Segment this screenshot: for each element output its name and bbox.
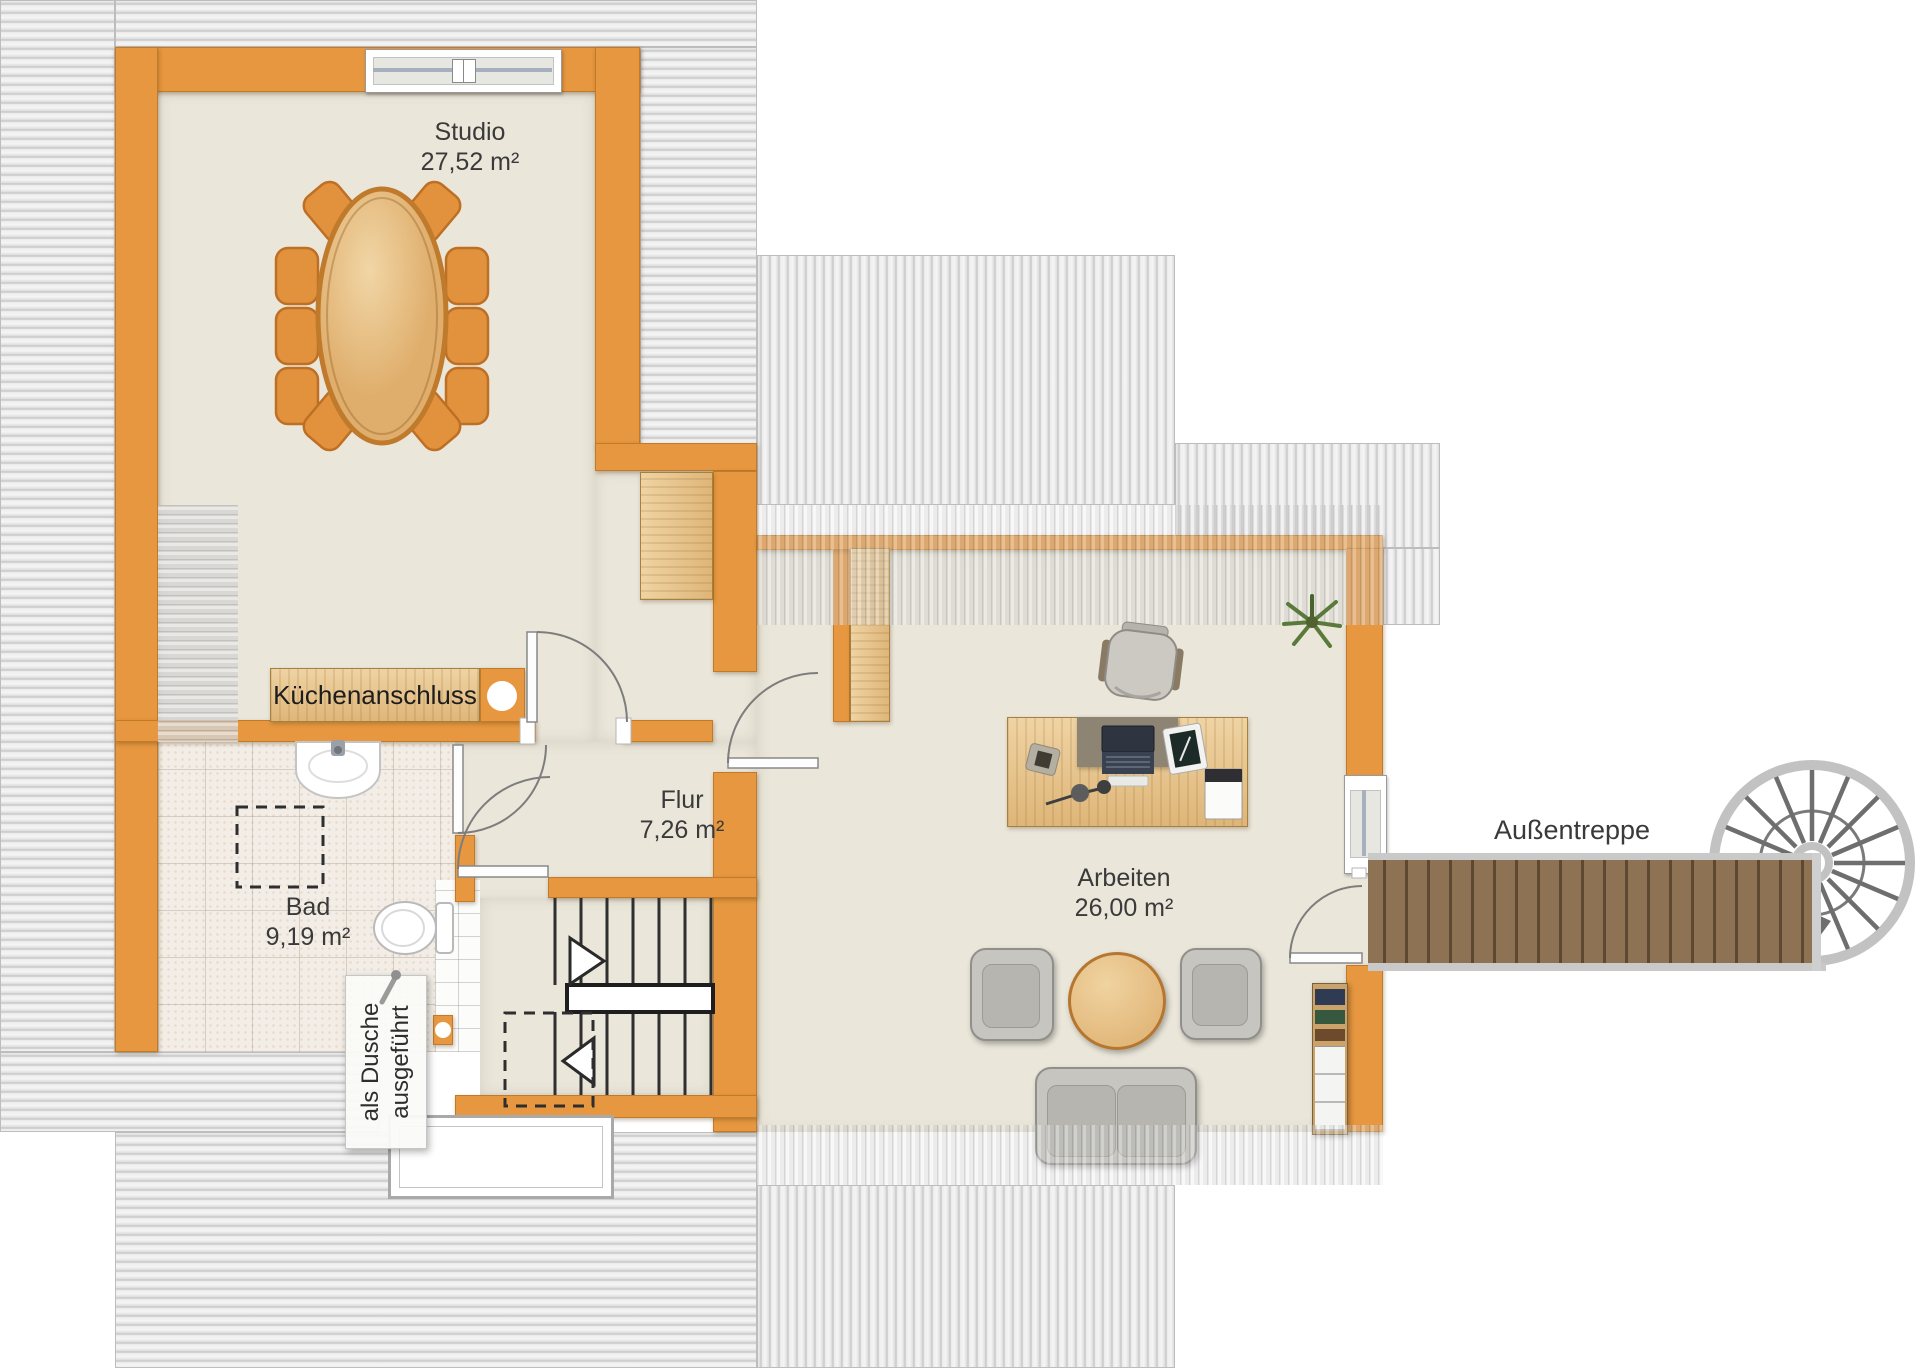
stair-floor — [480, 898, 713, 1095]
room-label-studio: Studio 27,52 m² — [421, 117, 520, 177]
shower-note-text: als Dusche ausgeführt — [356, 972, 416, 1152]
armchair-left — [970, 948, 1054, 1041]
window-glass-line — [1362, 790, 1366, 856]
armchair-right — [1180, 948, 1262, 1040]
coffee-table — [1068, 952, 1166, 1050]
window-handle — [452, 59, 476, 83]
room-name: Flur — [640, 785, 725, 815]
wall-stair-stub — [433, 1015, 453, 1045]
spiral-staircase-icon — [1714, 765, 1910, 961]
exterior-deck — [1368, 853, 1826, 971]
roof-hatch-right-corner — [1383, 548, 1440, 625]
floor-plan: Küchenanschluss — [0, 0, 1920, 1368]
kitchen-connection-label: Küchenanschluss — [270, 668, 480, 722]
armchair-cushion — [1192, 964, 1248, 1026]
shower-note: als Dusche ausgeführt — [345, 975, 427, 1149]
roof-hatch-right-of-studio — [640, 47, 757, 447]
armchair-cushion — [982, 964, 1040, 1028]
wall-bad-right — [455, 835, 475, 902]
exterior-stairs-label: Außentreppe — [1494, 814, 1650, 846]
wall-stair-top — [548, 877, 757, 898]
kitchen-sink-block — [480, 668, 525, 722]
wall-studio-south-right — [622, 720, 713, 742]
bookshelf — [1312, 983, 1348, 1135]
roof-overlay-arbeiten-bottom — [757, 1125, 1383, 1185]
wall-arbeiten-right-lower — [1346, 965, 1383, 1132]
roof-hatch-bottom-left — [0, 1052, 380, 1132]
roof-hatch-top-strip — [115, 0, 757, 47]
room-area: 9,19 m² — [266, 922, 351, 952]
room-name: Arbeiten — [1075, 863, 1174, 893]
window-studio-top — [365, 49, 562, 93]
room-area: 27,52 m² — [421, 147, 520, 177]
window-arbeiten-right — [1344, 775, 1387, 874]
room-area: 7,26 m² — [640, 815, 725, 845]
wall-studio-right — [595, 47, 640, 447]
roof-hatch-bottom-right — [757, 1185, 1175, 1368]
roof-hatch-left-column — [0, 0, 115, 1052]
spiral-direction-arrow — [1805, 909, 1831, 944]
room-name: Studio — [421, 117, 520, 147]
roof-overlay-arbeiten-top — [757, 505, 1383, 625]
wall-left-exterior — [115, 47, 158, 1052]
wall-connector-top — [595, 443, 757, 471]
roof-hatch-top-right-band — [757, 255, 1175, 505]
cabinet-connector — [640, 472, 713, 600]
room-area: 26,00 m² — [1075, 893, 1174, 923]
kitchen-counter: Küchenanschluss — [270, 668, 480, 722]
desk-pad — [1077, 717, 1178, 767]
room-label-flur: Flur 7,26 m² — [640, 785, 725, 845]
wall-mid-vertical-upper — [713, 471, 757, 672]
room-name: Bad — [266, 892, 351, 922]
room-label-arbeiten: Arbeiten 26,00 m² — [1075, 863, 1174, 923]
roof-overlay-studio-left — [158, 505, 238, 742]
room-label-bad: Bad 9,19 m² — [266, 892, 351, 952]
